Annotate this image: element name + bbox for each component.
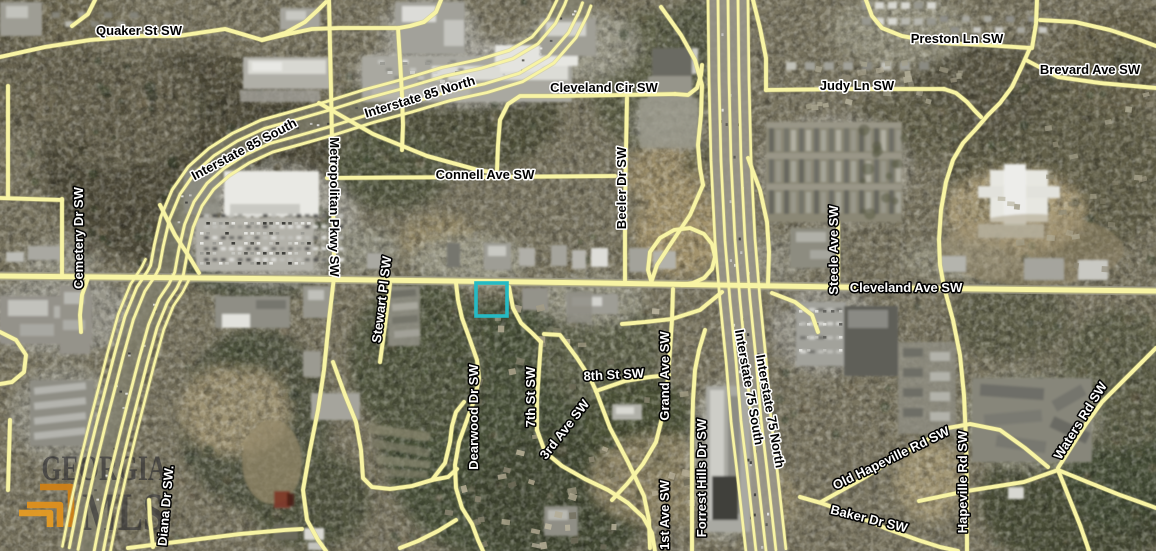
- svg-text:8th St SW: 8th St SW: [583, 365, 645, 383]
- svg-text:Judy Ln SW: Judy Ln SW: [820, 78, 895, 93]
- svg-text:Metropolitan Pkwy SW: Metropolitan Pkwy SW: [327, 137, 342, 277]
- svg-text:Cleveland Cir SW: Cleveland Cir SW: [550, 80, 658, 95]
- svg-text:Beeler Dr SW: Beeler Dr SW: [614, 146, 629, 229]
- svg-text:Cleveland Ave SW: Cleveland Ave SW: [850, 280, 963, 295]
- svg-text:Dearwood Dr SW: Dearwood Dr SW: [466, 364, 481, 470]
- svg-text:Grand Ave SW: Grand Ave SW: [657, 331, 672, 421]
- svg-text:Steele Ave SW: Steele Ave SW: [826, 205, 841, 295]
- svg-text:Quaker St SW: Quaker St SW: [96, 23, 183, 38]
- svg-text:Preston Ln SW: Preston Ln SW: [911, 31, 1004, 46]
- svg-text:1st Ave SW: 1st Ave SW: [657, 479, 672, 550]
- svg-text:7th St SW: 7th St SW: [523, 366, 538, 427]
- svg-text:Forrest Hills Dr SW: Forrest Hills Dr SW: [694, 418, 709, 537]
- svg-text:Brevard Ave SW: Brevard Ave SW: [1040, 62, 1141, 77]
- svg-text:Connell Ave SW: Connell Ave SW: [436, 167, 535, 182]
- svg-text:Cemetery Dr SW: Cemetery Dr SW: [71, 186, 86, 289]
- svg-text:Hapeville Rd SW: Hapeville Rd SW: [955, 430, 970, 533]
